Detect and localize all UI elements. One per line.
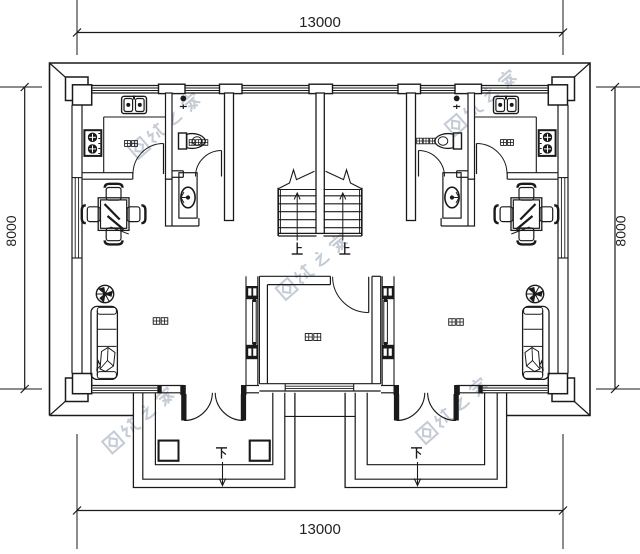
- svg-text:13000: 13000: [299, 521, 341, 538]
- svg-text:13000: 13000: [299, 14, 341, 31]
- svg-text:8000: 8000: [613, 215, 629, 246]
- svg-text:8000: 8000: [3, 215, 19, 246]
